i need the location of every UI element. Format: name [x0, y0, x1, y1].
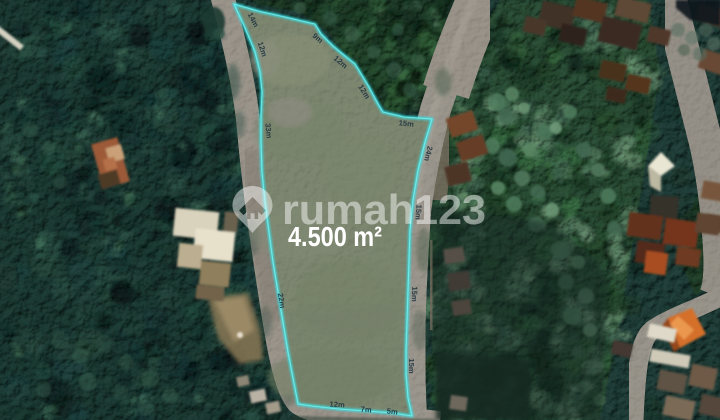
- svg-text:15m: 15m: [407, 358, 416, 373]
- svg-text:4.500 m²: 4.500 m²: [288, 221, 382, 252]
- svg-text:15m: 15m: [410, 286, 420, 302]
- svg-text:12m: 12m: [329, 399, 345, 409]
- svg-text:7m: 7m: [360, 405, 372, 415]
- svg-text:33m: 33m: [263, 123, 274, 139]
- svg-text:5m: 5m: [386, 406, 398, 416]
- svg-text:15m: 15m: [398, 118, 414, 129]
